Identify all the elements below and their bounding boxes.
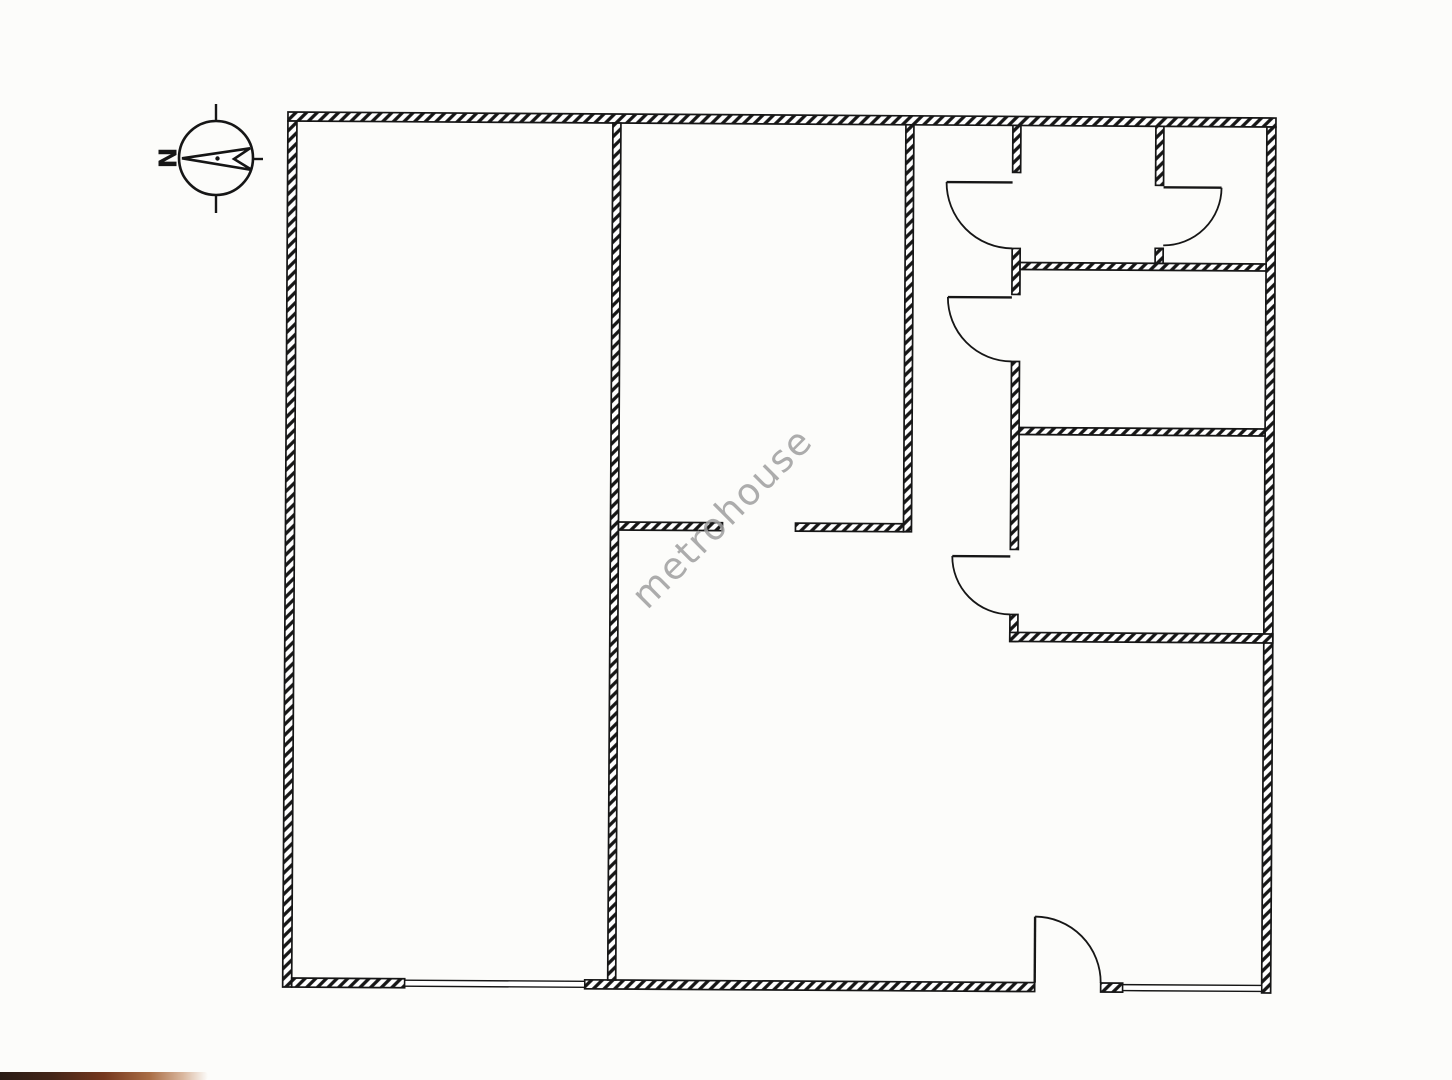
wall-topright-room-left-a (1156, 126, 1164, 185)
wall-exterior-top (288, 112, 1276, 127)
wall-exterior-bottom-c (1101, 983, 1123, 992)
wall-exterior-bottom-a (292, 978, 405, 988)
plan-group (283, 112, 1276, 993)
compass-center-dot (215, 156, 219, 160)
wall-corridor-right-c (1010, 361, 1019, 549)
wall-midroom-bottom-right-stub (795, 523, 903, 532)
wall-roomA-roomB-divider (1019, 427, 1265, 436)
wall-roomB-bottom (1010, 632, 1273, 643)
door-3-corridor-low-swing-arc (952, 556, 1010, 614)
wall-corridor-right-a (1013, 125, 1021, 172)
wall-topright-room-left-b (1155, 248, 1163, 263)
wall-toprooms-bottom (1020, 262, 1266, 271)
compass-north-indicator: N (153, 104, 264, 213)
wall-exterior-left (283, 121, 297, 987)
wall-exterior-right (1262, 127, 1276, 993)
compass-north-label: N (153, 148, 182, 169)
door-2-corridor-mid-swing-arc (947, 297, 1011, 361)
scanned-floorplan-page: { "page": { "background": "#fcfcfa", "in… (0, 0, 1452, 1080)
window-bottom-left (405, 980, 585, 987)
door-1-corridor-top-swing-arc (946, 182, 1012, 248)
door-5-bottom-entry-swing-arc (1035, 917, 1101, 983)
window-bottom-right (1123, 985, 1262, 992)
wall-exterior-bottom-b (585, 980, 1035, 992)
wall-corridor-right-b (1012, 248, 1020, 294)
door-4-topright-room-swing-arc (1163, 187, 1221, 245)
wall-leftroom-right (608, 123, 621, 980)
scan-artifact-bottom-left (0, 1072, 208, 1080)
wall-midroom-right-corridor-left (903, 125, 913, 532)
